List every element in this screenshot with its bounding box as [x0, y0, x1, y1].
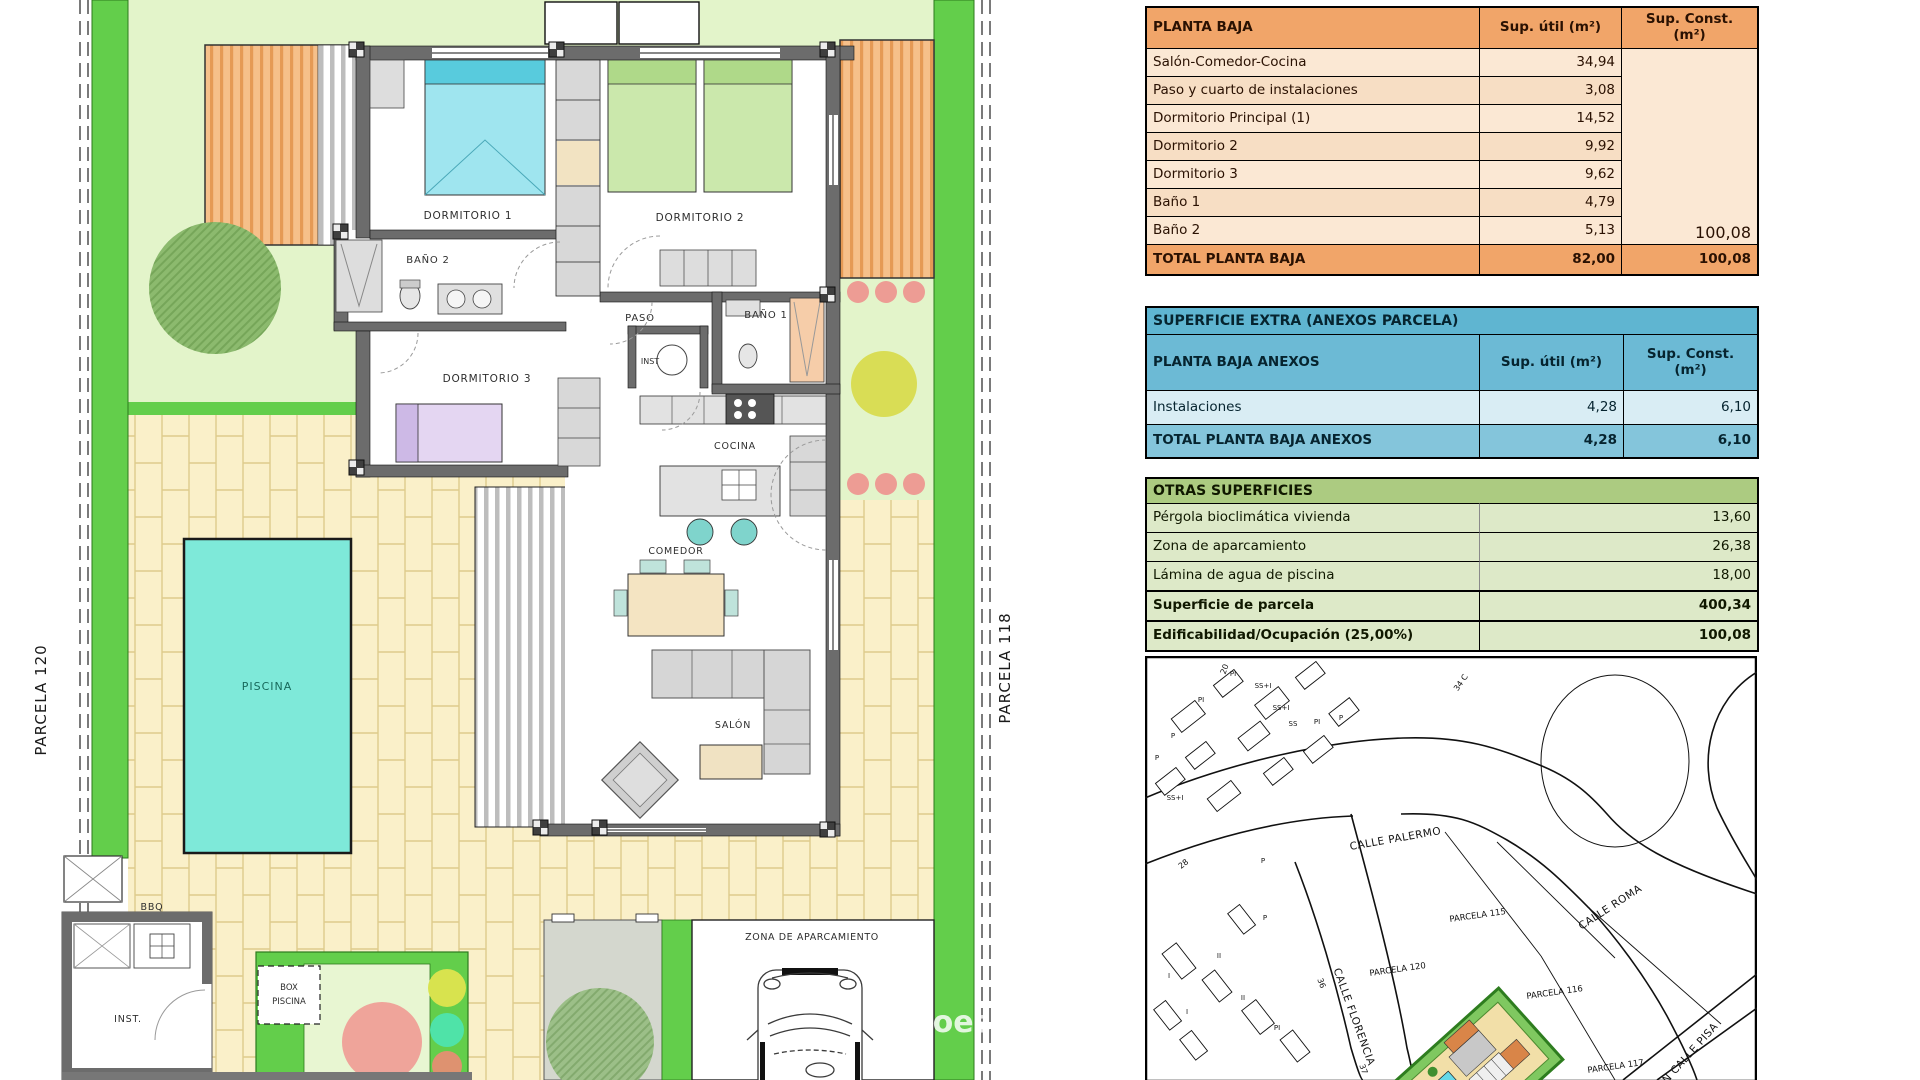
inst-ext-label: INST.: [114, 1014, 142, 1025]
row-label: Zona de aparcamiento: [1147, 532, 1479, 561]
inst-label: INST: [641, 357, 659, 366]
dormitorio3-label: DORMITORIO 3: [443, 373, 532, 385]
svg-text:I: I: [1186, 1008, 1188, 1016]
storage-boxes: [545, 2, 699, 44]
row-value: 6,10: [1623, 390, 1757, 424]
row-value: 14,52: [1479, 104, 1621, 132]
svg-text:PI: PI: [1198, 696, 1204, 704]
salon-label: SALÓN: [715, 719, 751, 731]
page: { "plan": { "parcela_left": "PARCELA 120…: [0, 0, 1920, 1080]
col-header-util: Sup. útil (m²): [1479, 334, 1623, 390]
svg-text:SS+I: SS+I: [1255, 682, 1272, 690]
total-util: 4,28: [1479, 424, 1623, 457]
row-label: Pérgola bioclimática vivienda: [1147, 503, 1479, 532]
side-pad: [544, 914, 692, 1080]
plant-box: BOX PISCINA: [256, 952, 468, 1080]
svg-text:I: I: [1168, 972, 1170, 980]
cocina-label: COCINA: [714, 441, 756, 452]
row-label: Lámina de agua de piscina: [1147, 561, 1479, 590]
row-label: Dormitorio 3: [1147, 160, 1479, 188]
row-label: Dormitorio Principal (1): [1147, 104, 1479, 132]
box-piscina-label-1: BOX: [280, 983, 298, 993]
floor-plan: PISCINA: [0, 0, 1040, 1080]
parking: ZONA DE APARCAMIENTO: [692, 920, 934, 1080]
row-value: 4,28: [1479, 390, 1623, 424]
svg-text:II: II: [1241, 994, 1245, 1002]
table-title: SUPERFICIE EXTRA (ANEXOS PARCELA): [1147, 308, 1757, 334]
pergola-top-right: [840, 40, 934, 278]
dormitorio1-label: DORMITORIO 1: [424, 210, 513, 222]
row-value: 34,94: [1479, 48, 1621, 76]
total-value: 400,34: [1479, 590, 1757, 620]
row-value: 3,08: [1479, 76, 1621, 104]
table-title: OTRAS SUPERFICIES: [1147, 479, 1757, 503]
row-value: 5,13: [1479, 216, 1621, 244]
row-value: 13,60: [1479, 503, 1757, 532]
row-label: Salón-Comedor-Cocina: [1147, 48, 1479, 76]
row-value: 9,92: [1479, 132, 1621, 160]
piscina-label: PISCINA: [242, 680, 293, 693]
row-value: 9,62: [1479, 160, 1621, 188]
site-map: P P PI PI SS+I SS+I SS PI P SS+I P P II …: [1145, 656, 1757, 1080]
col-header-const: Sup. Const. (m²): [1621, 8, 1757, 48]
svg-text:SS+I: SS+I: [1167, 794, 1184, 802]
bottom-band: [62, 1072, 472, 1080]
svg-text:P: P: [1155, 754, 1159, 762]
row-label: Dormitorio 2: [1147, 132, 1479, 160]
total-label: TOTAL PLANTA BAJA: [1147, 244, 1479, 274]
box-piscina-label-2: PISCINA: [272, 997, 306, 1007]
table-title: PLANTA BAJA: [1147, 8, 1479, 48]
row-value: 4,79: [1479, 188, 1621, 216]
total-label: TOTAL PLANTA BAJA ANEXOS: [1147, 424, 1479, 457]
row-label: Baño 2: [1147, 216, 1479, 244]
parcela-120-side-label: PARCELA 120: [32, 644, 50, 755]
svg-text:PI: PI: [1230, 670, 1236, 678]
total-label: Edificabilidad/Ocupación (25,00%): [1147, 620, 1479, 650]
col-header-util: Sup. útil (m²): [1479, 8, 1621, 48]
tree: [149, 222, 281, 354]
paso-label: PASO: [625, 313, 655, 324]
parcela-118-side-label: PARCELA 118: [996, 612, 1014, 723]
bano2-label: BAÑO 2: [406, 253, 449, 266]
row-value: 26,38: [1479, 532, 1757, 561]
total-label: Superficie de parcela: [1147, 590, 1479, 620]
col-header-const: Sup. Const. (m²): [1623, 334, 1757, 390]
row-value: 18,00: [1479, 561, 1757, 590]
row-label: Paso y cuarto de instalaciones: [1147, 76, 1479, 104]
superficie-extra-table: SUPERFICIE EXTRA (ANEXOS PARCELA) PLANTA…: [1145, 306, 1759, 459]
pool: PISCINA: [184, 539, 351, 853]
svg-text:SS+I: SS+I: [1273, 704, 1290, 712]
total-util: 82,00: [1479, 244, 1621, 274]
row-label: Baño 1: [1147, 188, 1479, 216]
svg-text:SS: SS: [1289, 720, 1298, 728]
otras-superficies-table: OTRAS SUPERFICIES Pérgola bioclimática v…: [1145, 477, 1759, 652]
svg-text:PI: PI: [1274, 1024, 1280, 1032]
svg-text:P: P: [1263, 914, 1267, 922]
total-const: 100,08: [1621, 244, 1757, 274]
total-value: 100,08: [1479, 620, 1757, 650]
bano1-label: BAÑO 1: [744, 308, 787, 321]
svg-text:II: II: [1217, 952, 1221, 960]
bbq-label: BBQ: [141, 902, 164, 913]
pergola-top-left-gray: [318, 45, 357, 245]
inst-building: INST.: [62, 912, 212, 1080]
watermark: oes: [933, 1005, 992, 1040]
table-subheader: PLANTA BAJA ANEXOS: [1147, 334, 1479, 390]
boundary-right: [982, 0, 990, 1080]
dormitorio2-label: DORMITORIO 2: [656, 212, 745, 224]
svg-text:P: P: [1339, 714, 1343, 722]
comedor-label: COMEDOR: [648, 546, 703, 557]
row-label: Instalaciones: [1147, 390, 1479, 424]
total-const: 6,10: [1623, 424, 1757, 457]
svg-text:PI: PI: [1314, 718, 1320, 726]
svg-text:P: P: [1171, 732, 1175, 740]
planta-baja-table: PLANTA BAJA Sup. útil (m²) Sup. Const. (…: [1145, 6, 1759, 276]
closet-column: [556, 60, 600, 296]
const-merged-cell: 100,08: [1621, 48, 1757, 244]
car: [747, 968, 873, 1080]
parking-label: ZONA DE APARCAMIENTO: [745, 932, 879, 943]
svg-text:P: P: [1261, 857, 1265, 865]
